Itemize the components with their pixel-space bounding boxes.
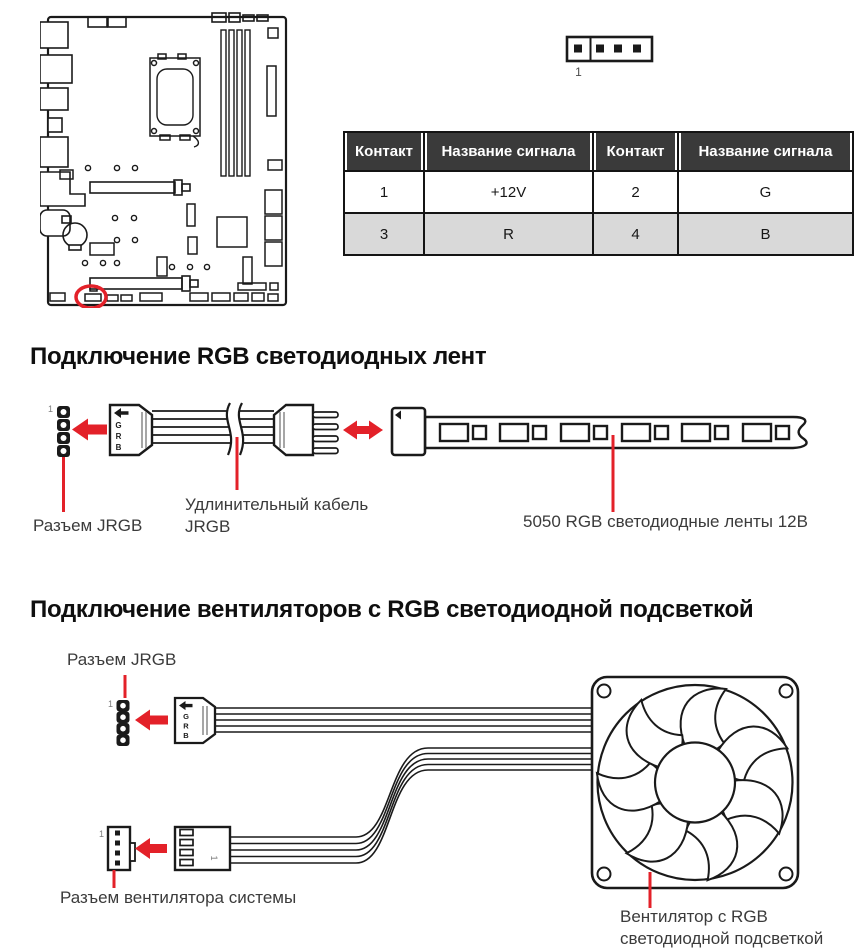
system-fan-header: [108, 827, 135, 870]
pin1-marker: 1: [48, 404, 53, 414]
label-extension-cable: Удлинительный кабель JRGB: [185, 494, 368, 537]
jrgb-cable-connector: G R B: [110, 405, 152, 455]
led-strip: [392, 408, 807, 455]
pin-letter-g: G: [115, 421, 121, 430]
pin1-marker: 1: [575, 65, 582, 79]
rgb-fan: [592, 677, 798, 888]
pin-definition-table: Контакт Название сигнала Контакт Названи…: [343, 131, 854, 256]
arrow-left-icon: [135, 710, 168, 731]
table-header-cell: Название сигнала: [678, 132, 853, 171]
pin-letter-b: B: [116, 443, 122, 452]
table-cell: R: [424, 213, 593, 255]
table-cell: B: [678, 213, 853, 255]
pin1-marker: 1: [99, 829, 104, 839]
extension-cable-wires: [152, 411, 274, 443]
jrgb-cable-connector: G R B: [175, 698, 215, 743]
pin1-marker: 1: [108, 699, 113, 709]
heading-rgb-fans: Подключение вентиляторов с RGB светодиод…: [30, 596, 753, 624]
table-row: 3 R 4 B: [344, 213, 853, 255]
top-edge-components: [88, 13, 268, 27]
pin-letter-r: R: [116, 432, 122, 441]
pin1-marker: 1: [209, 855, 219, 860]
label-system-fan-connector: Разъем вентилятора системы: [60, 887, 296, 909]
table-header-cell: Контакт: [344, 132, 424, 171]
label-rgb-fan: Вентилятор с RGB светодиодной подсветкой: [620, 906, 823, 949]
jrgb-pinout-graphic: 1: [563, 31, 658, 79]
fan-power-wires: [230, 748, 592, 863]
label-jrgb-connector: Разъем JRGB: [67, 649, 176, 671]
label-jrgb-connector: Разъем JRGB: [33, 515, 142, 537]
arrow-left-icon: [72, 419, 107, 441]
heading-rgb-strips: Подключение RGB светодиодных лент: [30, 343, 486, 371]
manual-page: 1 Контакт Название сигнала Контакт Назва…: [0, 0, 854, 951]
pin-letter-g: G: [183, 712, 189, 721]
table-cell: 1: [344, 171, 424, 213]
table-header-row: Контакт Название сигнала Контакт Названи…: [344, 132, 853, 171]
table-header-cell: Контакт: [593, 132, 678, 171]
label-led-strip: 5050 RGB светодиодные ленты 12В: [523, 511, 808, 533]
table-header-cell: Название сигнала: [424, 132, 593, 171]
jrgb-fan-wires: [215, 708, 592, 732]
fan-hub: [655, 743, 735, 823]
jrgb-header-pins: [117, 700, 130, 746]
pcie-slots: [90, 180, 198, 291]
table-row: 1 +12V 2 G: [344, 171, 853, 213]
pin-letter-r: R: [183, 722, 189, 731]
motherboard-diagram: [40, 8, 290, 308]
header-pins: [574, 45, 641, 53]
jrgb-header-pins: [57, 406, 70, 457]
table-cell: 2: [593, 171, 678, 213]
rear-io-ports: [40, 22, 85, 236]
table-cell: 4: [593, 213, 678, 255]
arrow-left-icon: [135, 838, 167, 859]
table-cell: G: [678, 171, 853, 213]
cable-socket-end: [274, 405, 338, 455]
misc-components: [60, 28, 282, 284]
cpu-socket: [150, 54, 200, 147]
table-cell: 3: [344, 213, 424, 255]
pin-letter-b: B: [183, 731, 189, 740]
table-cell: +12V: [424, 171, 593, 213]
fan-cable-connector: 1: [175, 827, 230, 870]
ram-slots: [221, 30, 250, 176]
double-arrow-icon: [343, 421, 383, 440]
